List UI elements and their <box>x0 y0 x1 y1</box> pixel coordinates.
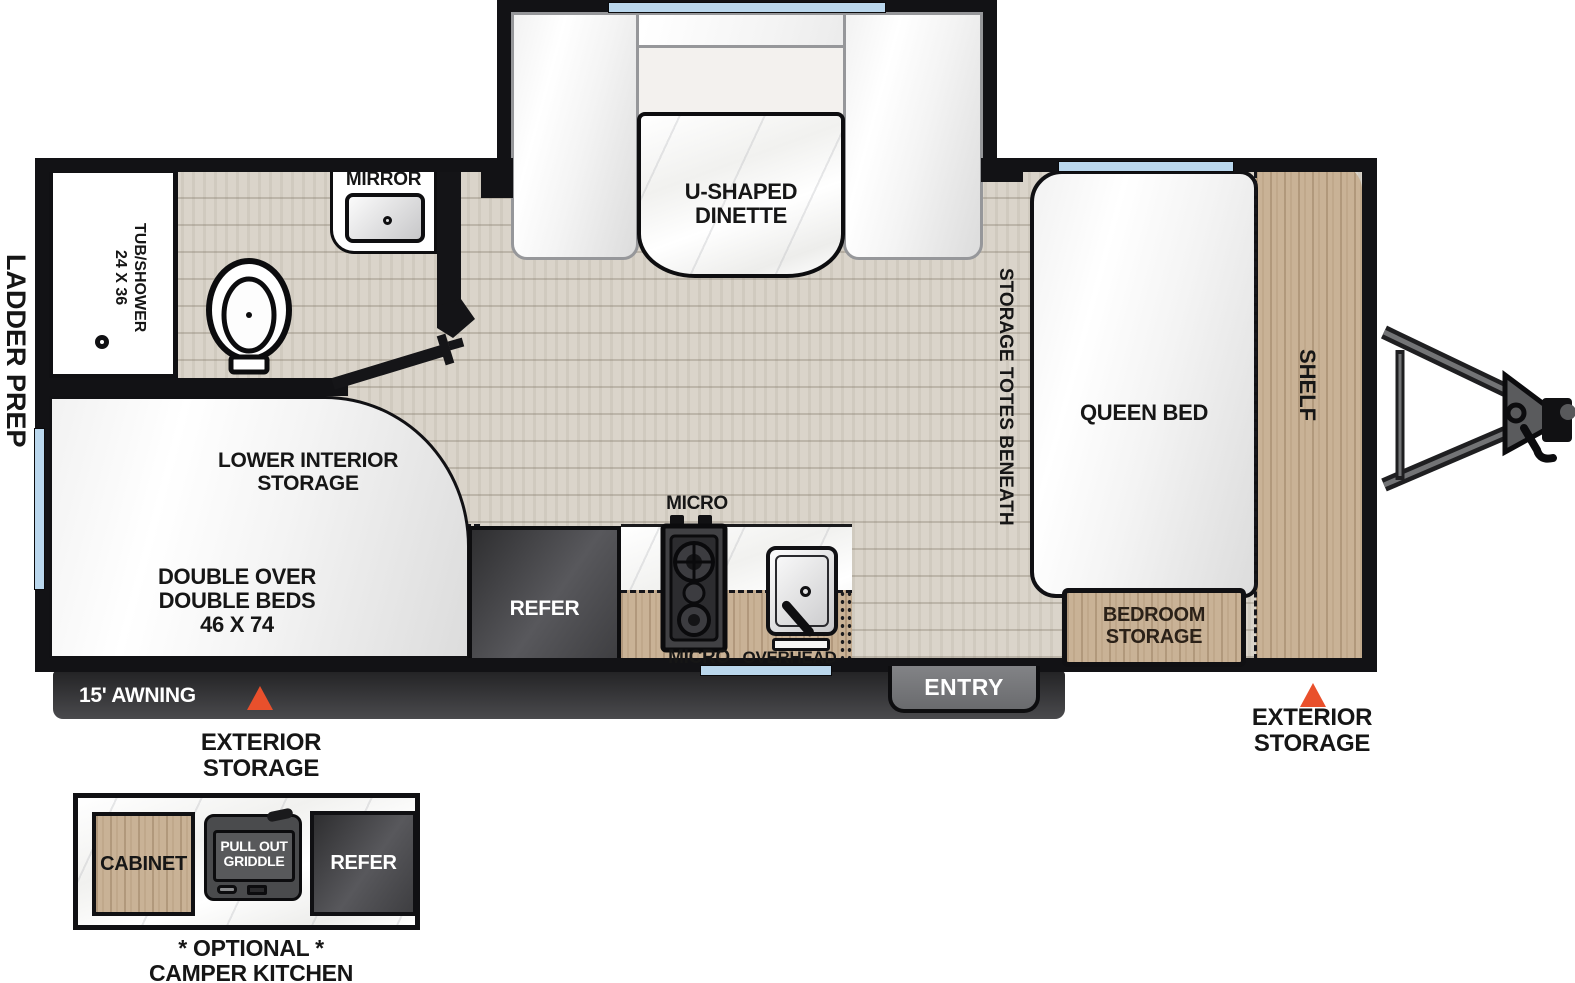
bathroom-sink-icon <box>345 193 425 243</box>
entry-label: ENTRY <box>892 675 1036 700</box>
tub-line2: TUB/SHOWER <box>130 183 149 373</box>
bedroom-storage-label: BEDROOM STORAGE <box>1067 605 1241 648</box>
slideout-wall-left <box>497 0 511 172</box>
double-bed-line3: 46 X 74 <box>200 612 274 637</box>
griddle-line2: GRIDDLE <box>224 853 285 869</box>
queen-bed <box>1030 170 1258 598</box>
top-wall-left <box>35 158 513 172</box>
dinette-label: U-SHAPED DINETTE <box>639 180 843 228</box>
exterior-storage-right-line2: STORAGE <box>1254 730 1370 757</box>
exterior-storage-label-left: EXTERIOR STORAGE <box>195 730 327 782</box>
double-bed-line1: DOUBLE OVER <box>158 564 316 589</box>
entry-door-tab: ENTRY <box>888 666 1040 713</box>
micro-label-bottom: MICRO <box>660 648 738 669</box>
shelf-dashed-divider <box>1254 172 1257 660</box>
tub-drain-icon <box>95 335 109 349</box>
bathroom-wall <box>35 378 348 396</box>
bathroom-door-icon <box>325 330 467 392</box>
lower-interior-storage-label: LOWER INTERIOR STORAGE <box>208 450 408 495</box>
ladder-prep-label: LADDER PREP <box>0 160 32 542</box>
dinette-bench-left <box>511 12 639 260</box>
exterior-storage-label-right: EXTERIOR STORAGE <box>1246 705 1378 757</box>
dinette-bench-right <box>843 12 983 260</box>
griddle-line1: PULL OUT <box>220 838 287 854</box>
left-wall <box>35 158 49 672</box>
bedroom-storage: BEDROOM STORAGE <box>1062 588 1246 667</box>
right-wall <box>1362 158 1377 672</box>
stove-icon <box>660 514 730 654</box>
caption-line2: CAMPER KITCHEN <box>149 960 353 983</box>
overhead-label: OVERHEAD <box>737 649 842 667</box>
camper-kitchen-caption: * OPTIONAL * CAMPER KITCHEN <box>111 936 391 983</box>
mirror-label: MIRROR <box>333 170 434 191</box>
micro-label-top: MICRO <box>658 494 736 515</box>
dinette-window <box>608 2 886 13</box>
exterior-storage-marker-left-icon <box>247 686 273 710</box>
exterior-storage-left-line1: EXTERIOR <box>201 729 321 756</box>
griddle-label: PULL OUT GRIDDLE <box>216 839 292 869</box>
storage-totes-label: STORAGE TOTES BENEATH <box>994 252 1024 542</box>
tub-shower: 24 X 36 TUB/SHOWER <box>48 168 178 379</box>
bathroom-partition-wall <box>435 166 483 340</box>
griddle-tab-right <box>247 885 267 895</box>
cabinet-label: CABINET <box>90 854 197 876</box>
refrigerator <box>468 526 621 664</box>
tub-shower-label: 24 X 36 TUB/SHOWER <box>111 183 149 373</box>
floorplan-diagram: LOWER INTERIOR STORAGE DOUBLE OVER DOUBL… <box>0 0 1575 983</box>
lower-storage-line2: STORAGE <box>257 472 358 495</box>
bedroom-storage-line2: STORAGE <box>1106 626 1202 648</box>
dinette-line1: U-SHAPED <box>685 179 798 204</box>
vanity-counter: MIRROR <box>330 168 437 254</box>
toilet-icon <box>203 258 295 376</box>
pull-out-griddle-icon: PULL OUT GRIDDLE <box>204 814 302 901</box>
bedroom-window <box>1058 161 1234 172</box>
double-bed-label: DOUBLE OVER DOUBLE BEDS 46 X 74 <box>130 565 344 636</box>
griddle-tab-left <box>217 885 237 894</box>
camper-kitchen-box: CABINET PULL OUT GRIDDLE REFER <box>73 793 420 930</box>
camper-kitchen-refer: REFER <box>310 811 417 916</box>
shelf-label: SHELF <box>1294 300 1324 470</box>
camper-kitchen-cabinet: CABINET <box>92 812 195 916</box>
griddle-coil-icon <box>266 807 294 822</box>
hitch-icon <box>1376 320 1575 500</box>
caption-line1: * OPTIONAL * <box>178 935 324 961</box>
tub-line1: 24 X 36 <box>111 183 130 373</box>
bunk-window <box>34 428 45 590</box>
camper-kitchen-refer-label: REFER <box>314 853 413 875</box>
bedroom-storage-line1: BEDROOM <box>1103 604 1205 626</box>
griddle-plate: PULL OUT GRIDDLE <box>213 830 295 882</box>
lower-storage-line1: LOWER INTERIOR <box>218 449 398 472</box>
exterior-storage-right-line1: EXTERIOR <box>1252 704 1372 731</box>
exterior-storage-left-line2: STORAGE <box>203 755 319 782</box>
dinette-line2: DINETTE <box>695 203 787 228</box>
slideout-wall-right <box>983 0 997 172</box>
queen-bed-label: QUEEN BED <box>1044 401 1244 425</box>
sink-drain-icon <box>800 586 811 597</box>
refrigerator-label: REFER <box>470 598 619 621</box>
bathroom-sink-drain-icon <box>383 216 392 225</box>
double-bed-line2: DOUBLE BEDS <box>159 588 316 613</box>
awning-label: 15' AWNING <box>79 684 196 708</box>
